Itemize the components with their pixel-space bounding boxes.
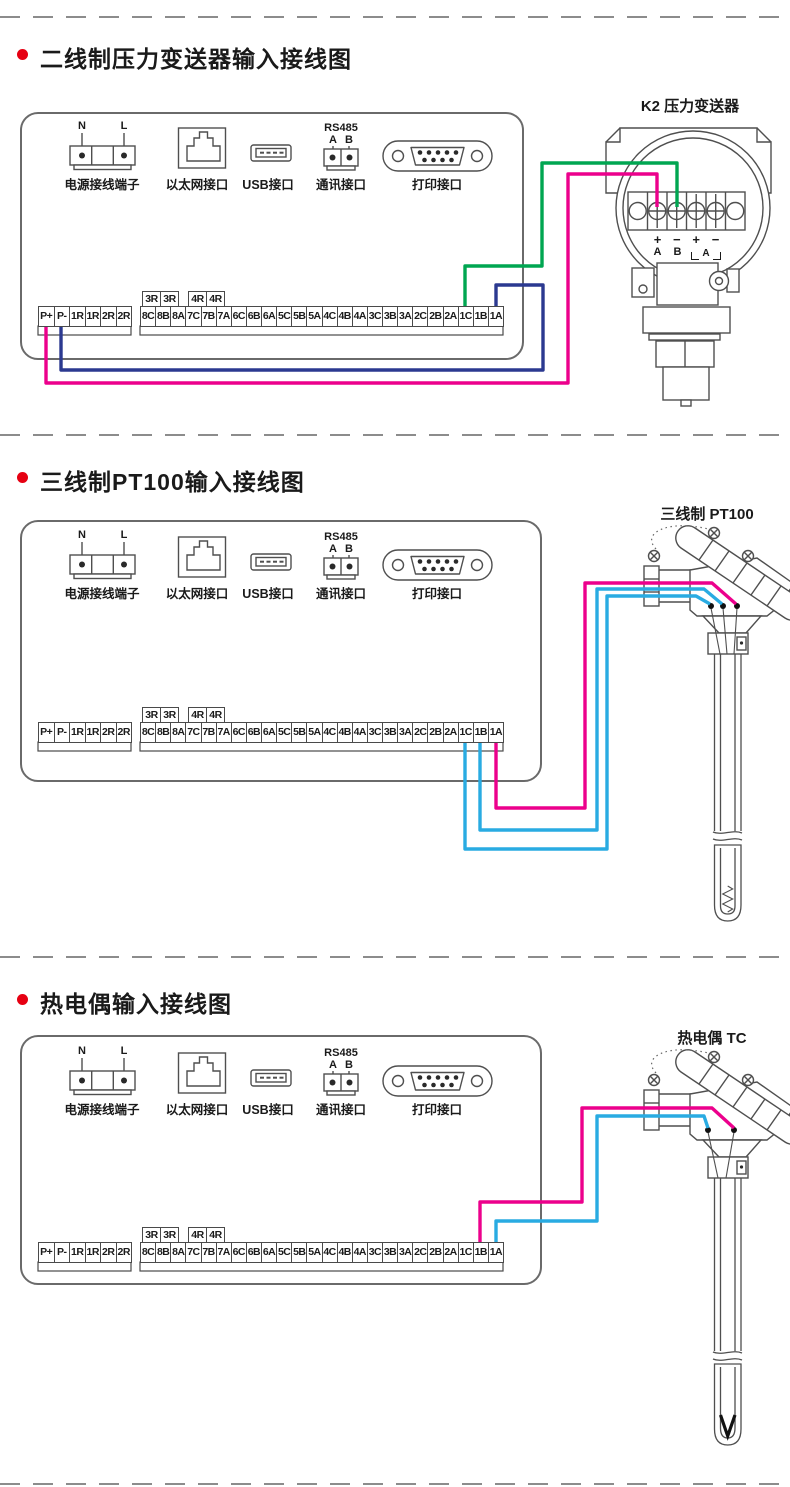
terminal-cell: 2A	[443, 1242, 459, 1263]
terminal-cell: 2B	[427, 1242, 443, 1263]
terminal-cell: 1R	[85, 722, 102, 743]
terminal-cell: 6C	[231, 306, 247, 327]
rs485-label: RS485	[316, 531, 366, 543]
terminal-cell: 7C	[185, 1242, 201, 1263]
printer-port-label: 打印接口	[397, 1099, 477, 1118]
terminal-cell: 6B	[246, 722, 262, 743]
terminal-cell: 6B	[246, 306, 262, 327]
wire-1b-to-pt100-middle	[480, 589, 722, 830]
terminal-cell: 4C	[322, 722, 338, 743]
terminal-row-left: P+P-1R1R2R2R	[38, 722, 132, 743]
panel2-ports	[70, 537, 492, 580]
terminal-cell: 2C	[412, 722, 428, 743]
terminal-cell: 4B	[337, 1242, 353, 1263]
wire-power-minus-to-1a	[61, 285, 543, 370]
wire-power-plus-to-transmitter-plus	[46, 174, 657, 383]
terminal-cell: 7B	[201, 722, 217, 743]
panel3-ports	[70, 1053, 492, 1096]
terminal-cell: 1A	[488, 722, 504, 743]
rs485-pin-b: B	[341, 1059, 357, 1071]
terminal-cell: 1B	[473, 306, 489, 327]
terminal-cell: 3C	[367, 722, 383, 743]
terminal-cell: 4C	[322, 306, 338, 327]
section2-title: 三线制PT100输入接线图	[40, 463, 305, 497]
terminal-cell: 6A	[261, 1242, 277, 1263]
terminal-cell: 2C	[412, 1242, 428, 1263]
terminal-cell: 8A	[170, 1242, 186, 1263]
section3-title: 热电偶输入接线图	[40, 985, 232, 1019]
terminal-cell: 4A	[352, 722, 368, 743]
terminal-sign: +	[648, 232, 667, 247]
terminal-cell: 8C	[140, 1242, 156, 1263]
terminal-cell: 8C	[140, 722, 156, 743]
power-pin-n: N	[74, 120, 90, 132]
terminal-cell: 1C	[458, 306, 474, 327]
terminal-cell: 5A	[306, 306, 322, 327]
terminal-cell: 5B	[291, 722, 307, 743]
wiring-diagram-page: 二线制压力变送器输入接线图 三线制PT100输入接线图 热电偶输入接线图 K2 …	[0, 0, 790, 1487]
rs485-label: RS485	[316, 122, 366, 134]
terminal-cell: 7A	[216, 306, 232, 327]
rs485-pin-a: A	[325, 543, 341, 555]
terminal-cell: 3B	[382, 1242, 398, 1263]
rtd-element-symbol	[723, 886, 733, 912]
terminal-cell: 8A	[170, 722, 186, 743]
bracket-right	[713, 252, 721, 260]
terminal-cell: 1R	[85, 1242, 102, 1263]
terminal-cell: 4A	[352, 1242, 368, 1263]
terminal-cell: 4A	[352, 306, 368, 327]
terminal-cell: 5C	[276, 306, 292, 327]
terminal-cell: 4C	[322, 1242, 338, 1263]
terminal-cell: 6A	[261, 306, 277, 327]
usb-port-label: USB接口	[228, 1099, 308, 1118]
power-pin-l: L	[116, 529, 132, 541]
terminal-cell: 6A	[261, 722, 277, 743]
power-pin-n: N	[74, 529, 90, 541]
terminal-cell: 8B	[155, 1242, 171, 1263]
wire-1a-to-tc-left	[496, 1116, 708, 1242]
terminal-sign: −	[706, 232, 725, 247]
terminal-cell: 2R	[100, 1242, 117, 1263]
terminal-cell: 7B	[201, 306, 217, 327]
terminal-row-left: P+P-1R1R2R2R	[38, 1242, 132, 1263]
pt100-label: 三线制 PT100	[617, 503, 790, 524]
terminal-cell: 2R	[116, 1242, 133, 1263]
terminal-cell: 2B	[427, 722, 443, 743]
terminal-cell: 3B	[382, 306, 398, 327]
terminal-cell: 2R	[100, 722, 117, 743]
power-port-label: 电源接线端子	[52, 1099, 152, 1118]
wire-1a-to-pt100-right	[496, 583, 736, 808]
k2-transmitter-label: K2 压力变送器	[590, 95, 790, 116]
panel1-ports	[70, 128, 492, 171]
terminal-cell: 5C	[276, 722, 292, 743]
terminal-cell: 1R	[69, 1242, 86, 1263]
terminal-row-main: 8C8B8A7C7B7A6C6B6A5C5B5A4C4B4A3C3B3A2C2B…	[140, 1242, 504, 1263]
section1-title: 二线制压力变送器输入接线图	[40, 40, 352, 74]
power-port-label: 电源接线端子	[52, 174, 152, 193]
usb-port-label: USB接口	[228, 174, 308, 193]
power-pin-l: L	[116, 120, 132, 132]
rs485-pin-a: A	[325, 134, 341, 146]
terminal-cell: P-	[54, 1242, 71, 1263]
terminal-cell: 8B	[155, 306, 171, 327]
terminal-cell: 1R	[69, 722, 86, 743]
terminal-row-main: 8C8B8A7C7B7A6C6B6A5C5B5A4C4B4A3C3B3A2C2B…	[140, 722, 504, 743]
terminal-cell: 3B	[382, 722, 398, 743]
terminal-cell: 2R	[116, 306, 133, 327]
terminal-cell: P+	[38, 306, 55, 327]
terminal-cell: 5A	[306, 1242, 322, 1263]
transmitter-terminal-block	[628, 192, 745, 230]
comm-port-label: 通讯接口	[301, 1099, 381, 1118]
terminal-cell: 8C	[140, 306, 156, 327]
power-port-label: 电源接线端子	[52, 583, 152, 602]
transmitter-terminal-signs: +−+−	[648, 232, 725, 247]
transmitter-bracket-pin: A	[691, 247, 721, 260]
terminal-cell: 5A	[306, 722, 322, 743]
terminal-cell: 7B	[201, 1242, 217, 1263]
terminal-cell: P+	[38, 1242, 55, 1263]
terminal-cell: P-	[54, 306, 71, 327]
terminal-cell: 5C	[276, 1242, 292, 1263]
bracket-left	[691, 252, 699, 260]
k2-transmitter-drawing	[606, 128, 771, 406]
terminal-cell: 5B	[291, 306, 307, 327]
substrip-3	[38, 1262, 503, 1271]
power-pin-l: L	[116, 1045, 132, 1057]
tc-probe	[713, 1178, 742, 1445]
tc-junction-symbol	[721, 1415, 736, 1436]
terminal-cell: 2R	[100, 306, 117, 327]
terminal-row-main: 8C8B8A7C7B7A6C6B6A5C5B5A4C4B4A3C3B3A2C2B…	[140, 306, 504, 327]
terminal-cell: 6B	[246, 1242, 262, 1263]
terminal-cell: 1C	[458, 722, 474, 743]
power-pin-n: N	[74, 1045, 90, 1057]
terminal-cell: 6C	[231, 722, 247, 743]
terminal-cell: 4B	[337, 722, 353, 743]
pt100-probe	[713, 654, 742, 921]
terminal-cell: 3C	[367, 1242, 383, 1263]
rs485-pin-b: B	[341, 134, 357, 146]
terminal-cell: 3A	[397, 306, 413, 327]
terminal-cell: 8B	[155, 722, 171, 743]
substrip-2	[38, 742, 503, 751]
pt100-sensor-drawing	[644, 526, 790, 921]
bullet-icon	[17, 994, 28, 1005]
comm-port-label: 通讯接口	[301, 583, 381, 602]
tc-label: 热电偶 TC	[632, 1027, 790, 1048]
rs485-pin-a: A	[325, 1059, 341, 1071]
terminal-sign: +	[687, 232, 706, 247]
terminal-cell: 1B	[473, 722, 489, 743]
rs485-label: RS485	[316, 1047, 366, 1059]
terminal-cell: 2A	[443, 306, 459, 327]
terminal-cell: 8A	[170, 306, 186, 327]
terminal-cell: 7A	[216, 1242, 232, 1263]
terminal-cell: 7A	[216, 722, 232, 743]
terminal-cell: 5B	[291, 1242, 307, 1263]
terminal-cell: 2R	[116, 722, 133, 743]
printer-port-label: 打印接口	[397, 174, 477, 193]
terminal-cell: 2A	[443, 722, 459, 743]
bracket-pin-label: A	[699, 247, 713, 260]
terminal-cell: P+	[38, 722, 55, 743]
terminal-cell: 1A	[488, 306, 504, 327]
diagram-graphics	[0, 0, 790, 1487]
terminal-cell: 7C	[185, 306, 201, 327]
terminal-cell: 7C	[185, 722, 201, 743]
terminal-cell: P-	[54, 722, 71, 743]
comm-port-label: 通讯接口	[301, 174, 381, 193]
terminal-cell: 1C	[458, 1242, 474, 1263]
bullet-icon	[17, 472, 28, 483]
terminal-cell: 1R	[69, 306, 86, 327]
substrip-1	[38, 326, 503, 335]
terminal-cell: 3C	[367, 306, 383, 327]
transmitter-terminal-pins: AB	[648, 246, 687, 258]
terminal-cell: 3A	[397, 1242, 413, 1263]
terminal-cell: 4B	[337, 306, 353, 327]
terminal-sign: −	[667, 232, 686, 247]
printer-port-label: 打印接口	[397, 583, 477, 602]
terminal-pin: A	[648, 246, 667, 258]
terminal-cell: 1R	[85, 306, 102, 327]
usb-port-label: USB接口	[228, 583, 308, 602]
terminal-cell: 2B	[427, 306, 443, 327]
terminal-pin: B	[668, 246, 687, 258]
bullet-icon	[17, 49, 28, 60]
rs485-pin-b: B	[341, 543, 357, 555]
terminal-cell: 1B	[473, 1242, 489, 1263]
terminal-cell: 2C	[412, 306, 428, 327]
terminal-cell: 6C	[231, 1242, 247, 1263]
terminal-cell: 3A	[397, 722, 413, 743]
terminal-row-left: P+P-1R1R2R2R	[38, 306, 132, 327]
terminal-cell: 1A	[488, 1242, 504, 1263]
